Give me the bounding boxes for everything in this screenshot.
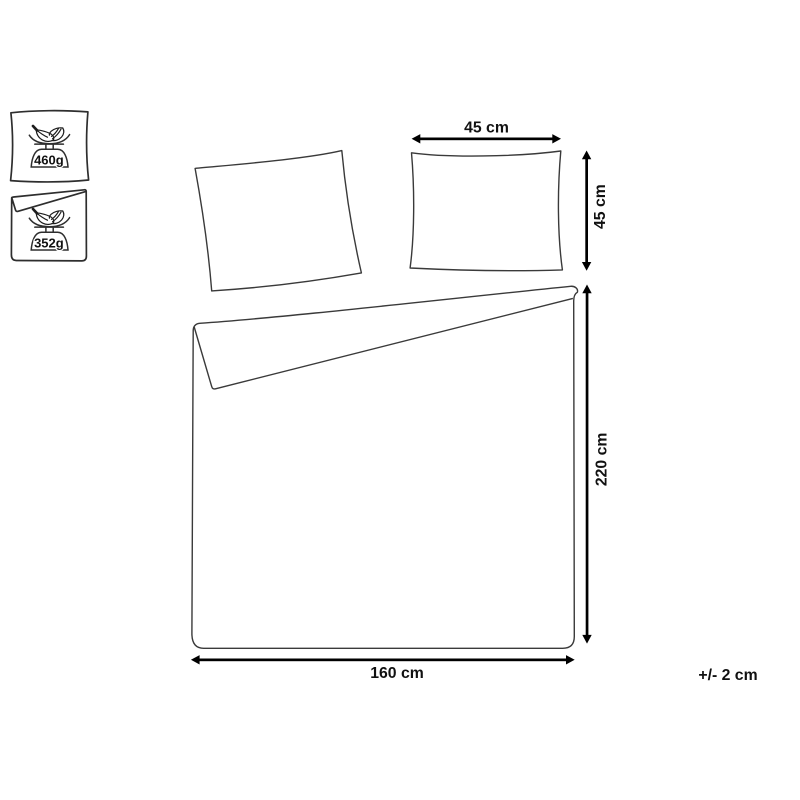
svg-text:45 cm: 45 cm (464, 120, 509, 137)
svg-text:220 cm: 220 cm (594, 433, 611, 487)
svg-text:160 cm: 160 cm (370, 665, 424, 682)
svg-text:352g: 352g (34, 235, 64, 250)
svg-text:45 cm: 45 cm (592, 184, 609, 229)
svg-text:+/- 2 cm: +/- 2 cm (698, 667, 757, 684)
svg-text:460g: 460g (34, 152, 64, 167)
